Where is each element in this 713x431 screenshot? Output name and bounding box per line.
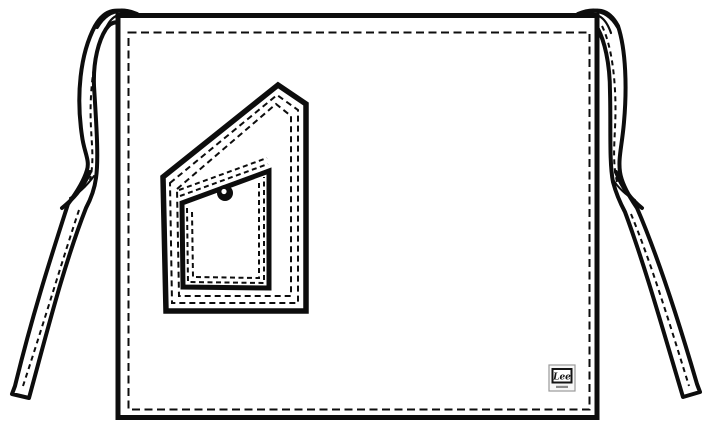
left-tie-stitch-tail [23,210,79,386]
brand-label-fine-print-line [556,386,568,388]
apron-drawing-canvas: Lee [0,0,713,431]
brand-label-text: Lee [552,373,571,383]
brand-label: Lee [549,365,575,391]
apron-flat-sketch: Lee [0,0,713,431]
rivet-icon [217,185,233,201]
